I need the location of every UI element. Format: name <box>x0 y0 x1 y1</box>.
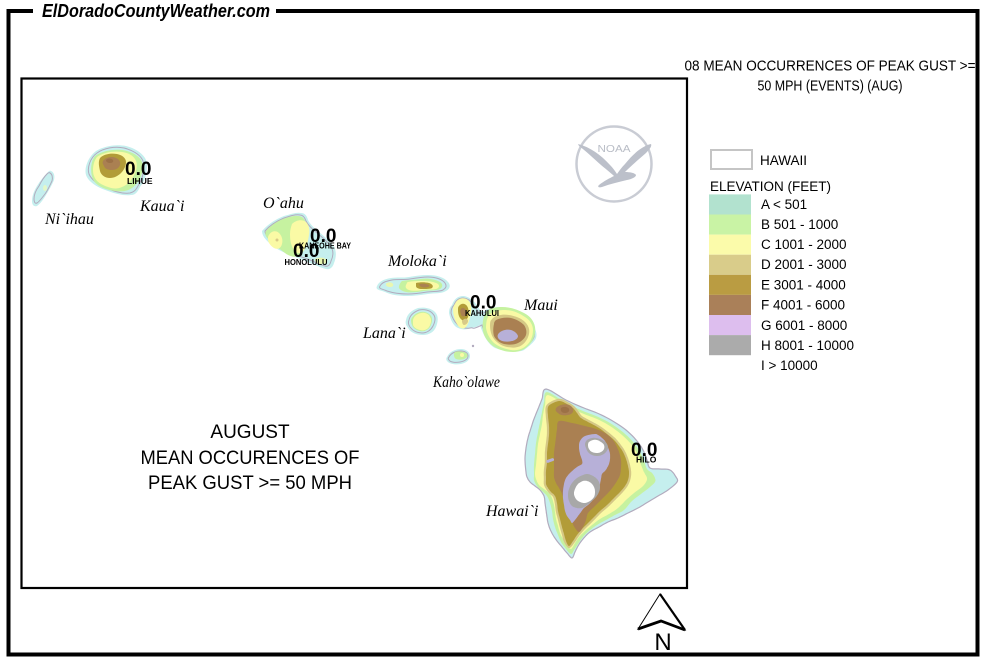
svg-text:KAHULUI: KAHULUI <box>465 308 499 318</box>
svg-text:HILO: HILO <box>636 455 657 465</box>
svg-text:HAWAII: HAWAII <box>760 153 807 168</box>
svg-text:H 8001 - 10000: H 8001 - 10000 <box>761 338 854 353</box>
svg-text:G 6001 - 8000: G 6001 - 8000 <box>761 318 847 333</box>
svg-text:Ni`ihau: Ni`ihau <box>44 211 94 228</box>
svg-text:D 2001 - 3000: D 2001 - 3000 <box>761 257 847 272</box>
svg-text:Maui: Maui <box>523 297 558 314</box>
svg-text:F 4001 - 6000: F 4001 - 6000 <box>761 298 845 313</box>
svg-text:AUGUST: AUGUST <box>210 422 290 443</box>
svg-text:HONOLULU: HONOLULU <box>285 257 328 267</box>
svg-text:C 1001 - 2000: C 1001 - 2000 <box>761 237 847 252</box>
svg-text:PEAK GUST >= 50 MPH: PEAK GUST >= 50 MPH <box>148 473 352 494</box>
svg-text:LIHUE: LIHUE <box>127 176 153 186</box>
svg-text:08 MEAN OCCURRENCES OF PEAK GU: 08 MEAN OCCURRENCES OF PEAK GUST >= <box>685 59 976 75</box>
svg-text:Moloka`i: Moloka`i <box>387 253 447 270</box>
svg-text:B 501 - 1000: B 501 - 1000 <box>761 217 838 232</box>
svg-text:ElDoradoCountyWeather.com: ElDoradoCountyWeather.com <box>42 1 270 21</box>
svg-text:MEAN OCCURENCES OF: MEAN OCCURENCES OF <box>141 448 360 469</box>
svg-text:A < 501: A < 501 <box>761 197 807 212</box>
svg-text:E 3001 - 4000: E 3001 - 4000 <box>761 278 846 293</box>
svg-text:Kaua`i: Kaua`i <box>139 198 184 215</box>
svg-text:Kaho`olawe: Kaho`olawe <box>432 374 500 391</box>
svg-text:Hawai`i: Hawai`i <box>485 503 538 520</box>
svg-text:ELEVATION (FEET): ELEVATION (FEET) <box>710 179 831 194</box>
svg-text:I > 10000: I > 10000 <box>761 358 818 373</box>
svg-text:N: N <box>654 629 671 656</box>
svg-text:NOAA: NOAA <box>598 143 631 155</box>
svg-text:O`ahu: O`ahu <box>263 195 304 212</box>
svg-text:Lana`i: Lana`i <box>362 325 406 342</box>
svg-text:50 MPH (EVENTS) (AUG): 50 MPH (EVENTS) (AUG) <box>758 79 903 95</box>
